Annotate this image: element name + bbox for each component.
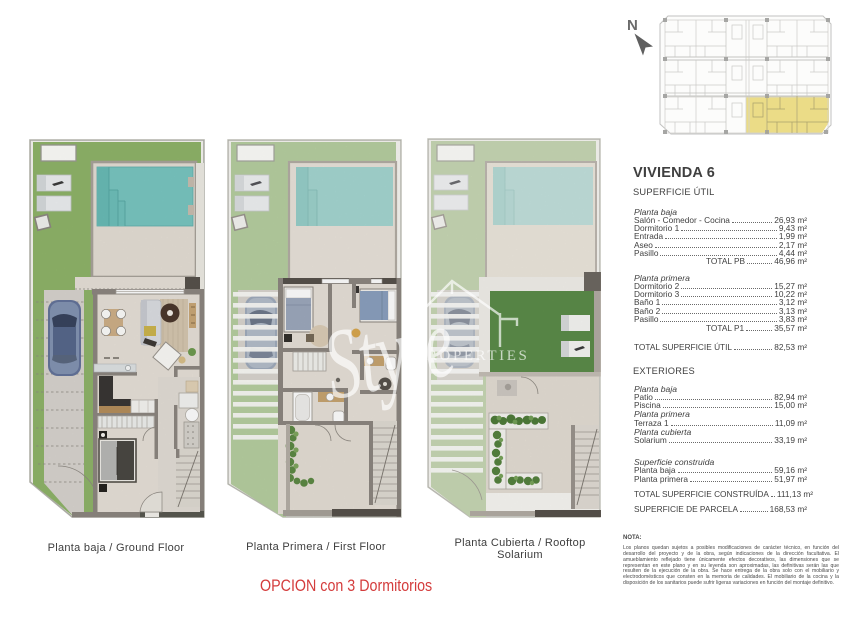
svg-text:PROPERTIES: PROPERTIES	[416, 348, 529, 364]
